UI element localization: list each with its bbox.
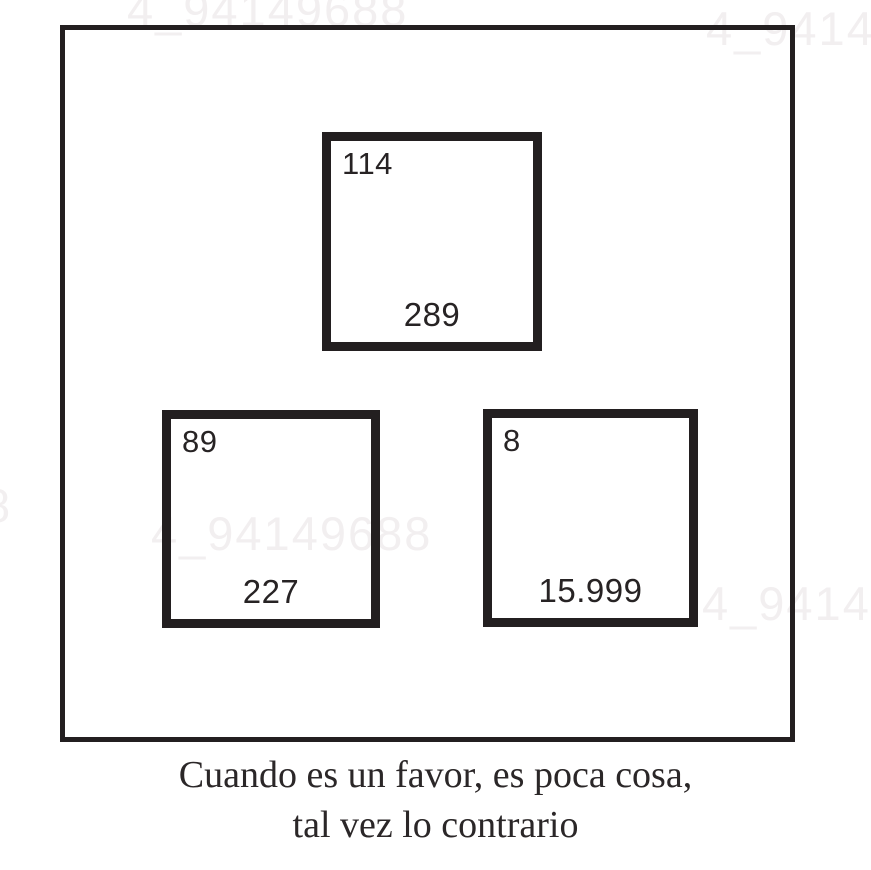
caption-line-2: tal vez lo contrario [0,800,871,850]
square-corner-number: 8 [503,423,521,459]
puzzle-square-bottom-left: 89 227 [162,410,380,628]
puzzle-image: 4_94149688 4_94149688 4_94149688 4_94149… [0,0,871,870]
square-corner-number: 89 [182,424,217,460]
square-bottom-number: 15.999 [492,572,689,610]
puzzle-square-top: 114 289 [322,132,542,351]
puzzle-square-bottom-right: 8 15.999 [483,409,698,627]
square-bottom-number: 289 [331,296,533,334]
caption: Cuando es un favor, es poca cosa, tal ve… [0,750,871,850]
square-corner-number: 114 [342,146,393,182]
square-bottom-number: 227 [171,573,371,611]
watermark-text-partial: 8 [0,478,12,533]
caption-line-1: Cuando es un favor, es poca cosa, [0,750,871,800]
